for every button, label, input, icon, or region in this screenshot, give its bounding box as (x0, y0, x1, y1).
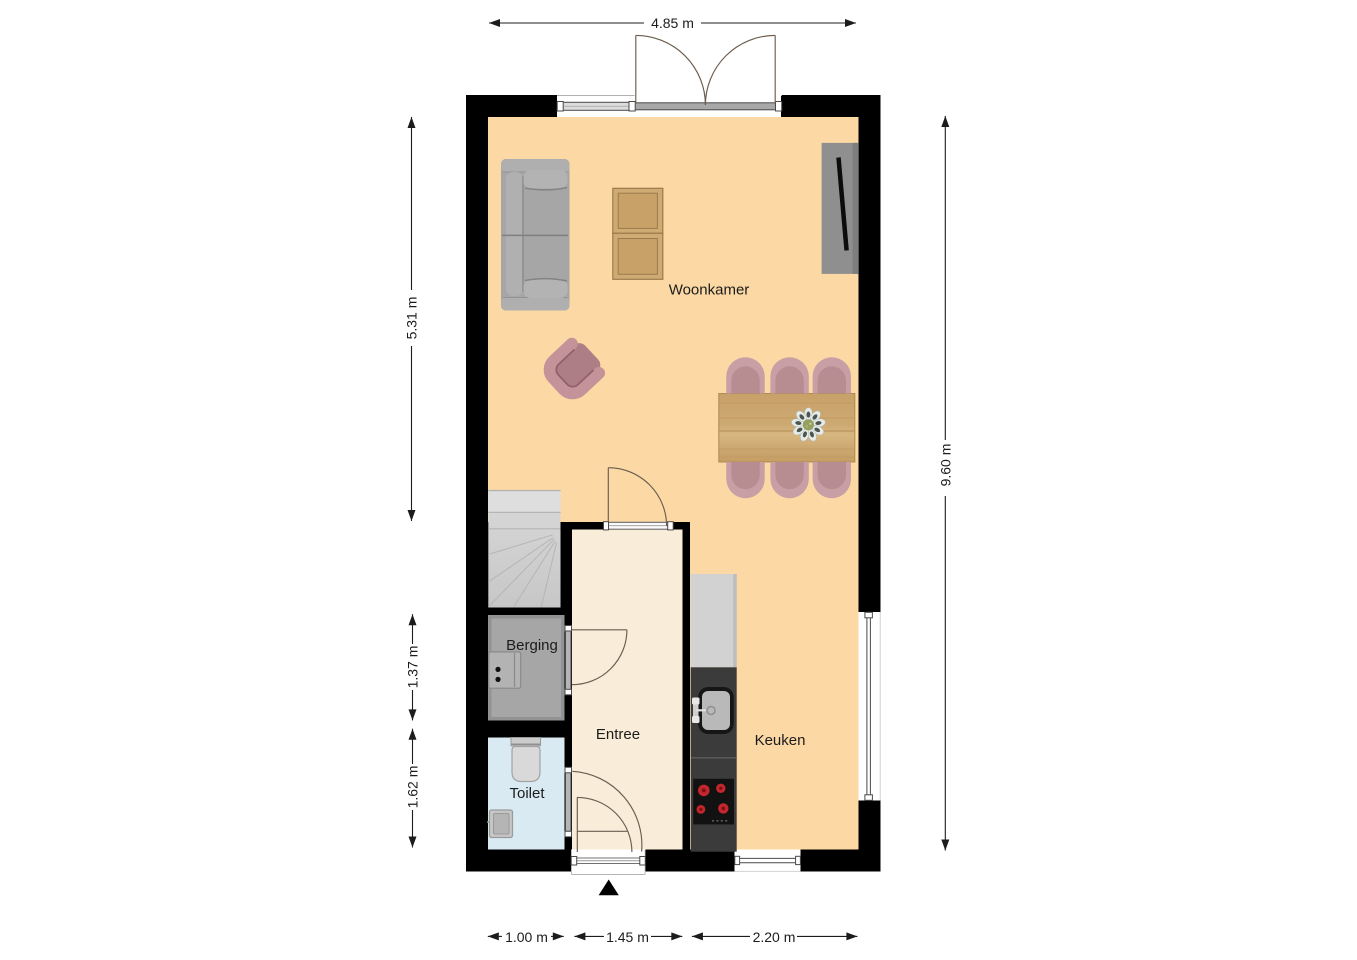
svg-text:5.31 m: 5.31 m (404, 297, 420, 340)
svg-text:1.00 m: 1.00 m (505, 929, 548, 945)
svg-text:1.45 m: 1.45 m (606, 929, 649, 945)
svg-text:Woonkamer: Woonkamer (669, 282, 750, 299)
svg-text:9.60 m: 9.60 m (937, 444, 953, 487)
svg-text:Keuken: Keuken (755, 732, 806, 749)
svg-text:1.62 m: 1.62 m (405, 766, 421, 809)
svg-text:1.37 m: 1.37 m (405, 646, 421, 689)
svg-text:Toilet: Toilet (509, 785, 545, 802)
svg-text:4.85 m: 4.85 m (651, 15, 694, 31)
svg-text:Entree: Entree (596, 726, 640, 743)
svg-text:2.20 m: 2.20 m (753, 929, 796, 945)
